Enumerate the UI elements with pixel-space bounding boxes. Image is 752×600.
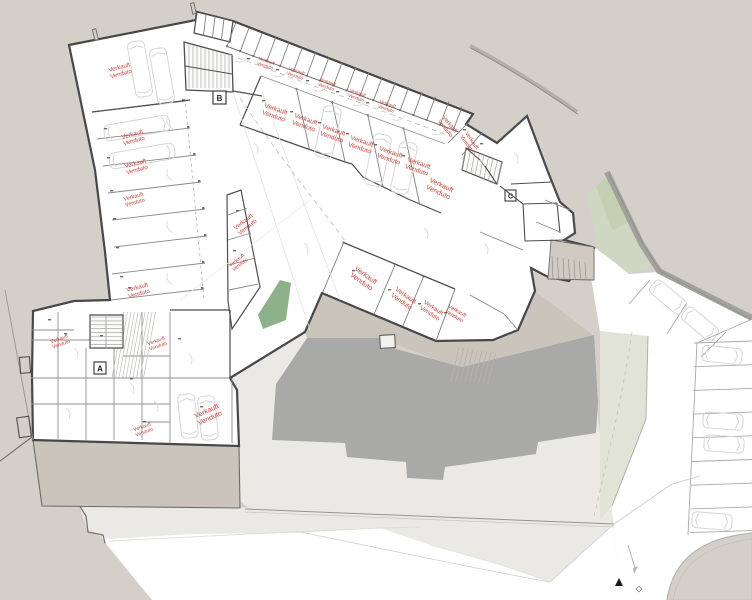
svg-text:A: A: [97, 365, 103, 374]
svg-text:B: B: [217, 94, 223, 103]
